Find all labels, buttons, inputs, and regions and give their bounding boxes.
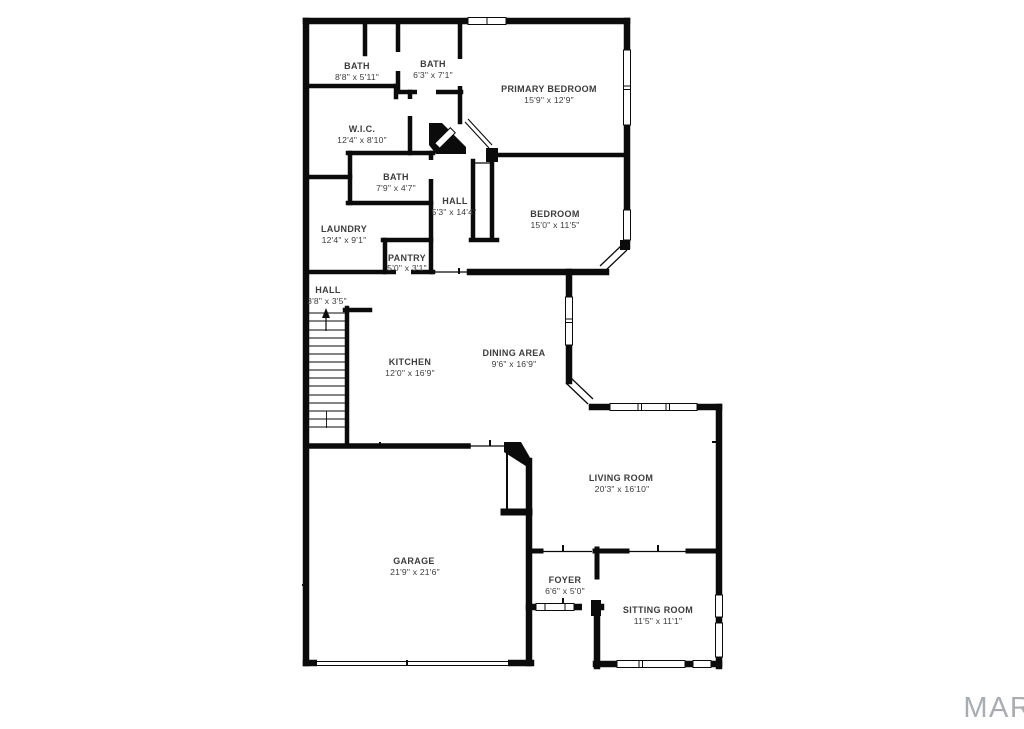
room-dims-pantry: 5'0" x 3'1" [387, 263, 427, 273]
room-dims-foyer: 6'6" x 5'0" [545, 586, 585, 596]
room-label-foyer: FOYER [549, 575, 582, 585]
room-label-laundry: LAUNDRY [321, 224, 367, 234]
room-label-bath1: BATH [344, 61, 370, 71]
room-label-living-room: LIVING ROOM [589, 473, 653, 483]
room-dims-bath2: 6'3" x 7'1" [413, 70, 453, 80]
room-dims-bath3: 7'9" x 4'7" [376, 183, 416, 193]
room-dims-bedroom: 15'0" x 11'5" [530, 220, 579, 230]
room-dims-wic: 12'4" x 8'10" [337, 135, 387, 145]
room-label-bedroom: BEDROOM [530, 209, 579, 219]
room-dims-laundry: 12'4" x 9'1" [322, 235, 367, 245]
interior-walls [306, 21, 719, 577]
room-labels: BATH 8'8" x 5'11" BATH 6'3" x 7'1" PRIMA… [307, 59, 693, 626]
room-dims-bath1: 8'8" x 5'11" [335, 72, 379, 82]
room-label-bath2: BATH [420, 59, 446, 69]
room-label-pantry: PANTRY [388, 253, 426, 263]
room-label-bath3: BATH [383, 172, 409, 182]
floor-plan-page: BATH 8'8" x 5'11" BATH 6'3" x 7'1" PRIMA… [0, 0, 1024, 729]
room-label-hall2: HALL [315, 285, 341, 295]
room-dims-living-room: 20'3" x 16'10" [595, 484, 650, 494]
room-dims-primary-bedroom: 15'9" x 12'9" [524, 95, 574, 105]
floor-plan-image: BATH 8'8" x 5'11" BATH 6'3" x 7'1" PRIMA… [0, 0, 1024, 729]
room-label-garage: GARAGE [393, 556, 435, 566]
room-dims-dining-area: 9'6" x 16'9" [492, 359, 537, 369]
room-dims-hall: 5'3" x 14'4" [432, 207, 477, 217]
staircase [307, 313, 345, 428]
exterior-walls [306, 21, 719, 666]
room-label-hall: HALL [442, 196, 468, 206]
room-label-primary-bedroom: PRIMARY BEDROOM [501, 84, 597, 94]
room-label-wic: W.I.C. [349, 124, 376, 134]
room-dims-sitting-room: 11'5" x 11'1" [634, 616, 682, 626]
window-mullions [487, 18, 670, 668]
room-dims-hall2: 3'8" x 3'5" [307, 296, 347, 306]
room-label-kitchen: KITCHEN [389, 357, 431, 367]
room-dims-kitchen: 12'0" x 16'9" [385, 368, 435, 378]
room-label-dining-area: DINING AREA [482, 348, 545, 358]
room-label-sitting-room: SITTING ROOM [623, 605, 693, 615]
maris-watermark: MARIS [963, 692, 1024, 724]
room-dims-garage: 21'9" x 21'6" [390, 567, 440, 577]
